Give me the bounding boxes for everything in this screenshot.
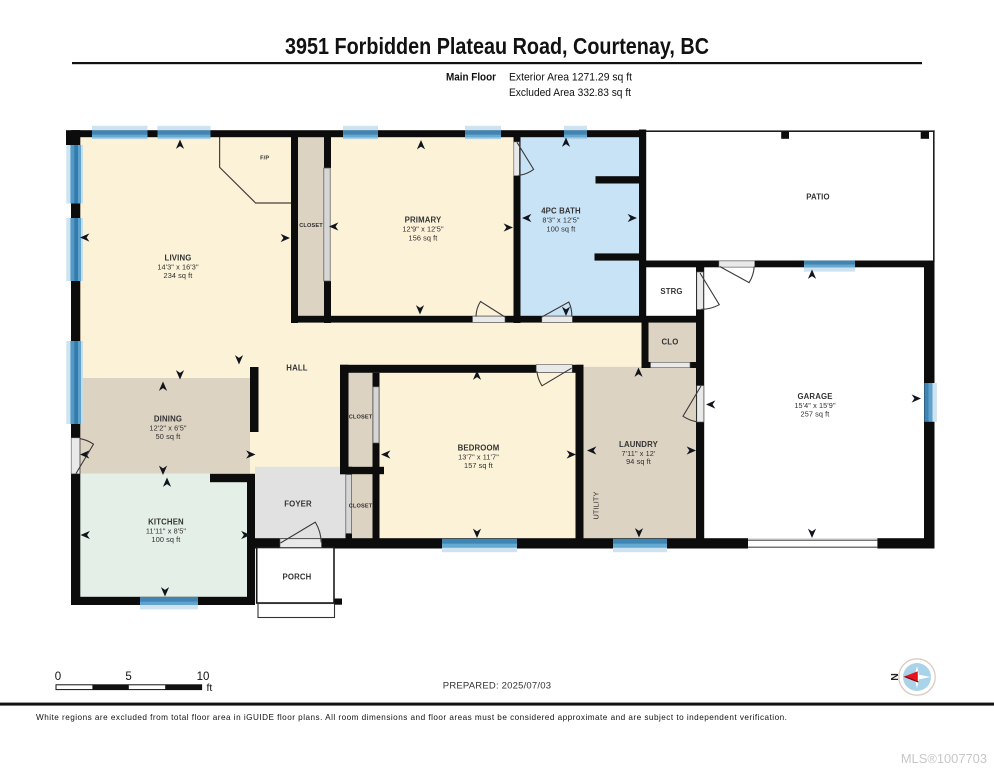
svg-text:8'3" x 12'5": 8'3" x 12'5" <box>542 216 579 225</box>
svg-text:FOYER: FOYER <box>284 500 312 509</box>
svg-text:DINING: DINING <box>154 415 182 424</box>
svg-text:UTILITY: UTILITY <box>592 492 601 520</box>
svg-text:PRIMARY: PRIMARY <box>405 216 442 225</box>
svg-text:CLOSET: CLOSET <box>349 415 373 421</box>
svg-text:PATIO: PATIO <box>806 193 829 202</box>
svg-text:White regions are excluded fro: White regions are excluded from total fl… <box>36 713 787 722</box>
svg-text:ft: ft <box>207 682 213 694</box>
svg-text:157 sq ft: 157 sq ft <box>464 461 493 470</box>
svg-text:12'9" x 12'5": 12'9" x 12'5" <box>402 225 444 234</box>
svg-text:5: 5 <box>125 671 131 683</box>
svg-text:LIVING: LIVING <box>165 254 192 263</box>
svg-text:Excluded Area 332.83 sq ft: Excluded Area 332.83 sq ft <box>509 87 632 99</box>
svg-text:94 sq ft: 94 sq ft <box>626 457 651 466</box>
svg-text:CLOSET: CLOSET <box>349 503 373 509</box>
svg-text:GARAGE: GARAGE <box>797 392 832 401</box>
svg-text:F/P: F/P <box>260 156 269 162</box>
svg-text:LAUNDRY: LAUNDRY <box>619 440 659 449</box>
svg-text:234 sq ft: 234 sq ft <box>164 271 193 280</box>
svg-text:MLS®1007703: MLS®1007703 <box>901 751 987 766</box>
svg-text:HALL: HALL <box>286 364 307 373</box>
svg-text:4PC BATH: 4PC BATH <box>541 207 581 216</box>
svg-text:0: 0 <box>55 671 61 683</box>
svg-text:3951 Forbidden Plateau Road, C: 3951 Forbidden Plateau Road, Courtenay, … <box>285 33 709 59</box>
svg-text:Exterior Area 1271.29 sq ft: Exterior Area 1271.29 sq ft <box>509 72 633 84</box>
svg-text:100 sq ft: 100 sq ft <box>547 225 576 234</box>
svg-text:50 sq ft: 50 sq ft <box>156 432 181 441</box>
svg-text:N: N <box>889 673 901 681</box>
svg-text:STRG: STRG <box>660 287 682 296</box>
svg-text:Main Floor: Main Floor <box>446 72 496 84</box>
svg-text:100 sq ft: 100 sq ft <box>152 535 181 544</box>
svg-text:CLO: CLO <box>662 338 679 347</box>
svg-text:BEDROOM: BEDROOM <box>458 444 500 453</box>
svg-text:PREPARED: 2025/07/03: PREPARED: 2025/07/03 <box>443 681 551 692</box>
svg-text:PORCH: PORCH <box>283 573 312 582</box>
svg-text:257 sq ft: 257 sq ft <box>801 410 830 419</box>
svg-text:156 sq ft: 156 sq ft <box>409 234 438 243</box>
svg-text:KITCHEN: KITCHEN <box>148 518 184 527</box>
svg-text:CLOSET: CLOSET <box>299 223 323 229</box>
